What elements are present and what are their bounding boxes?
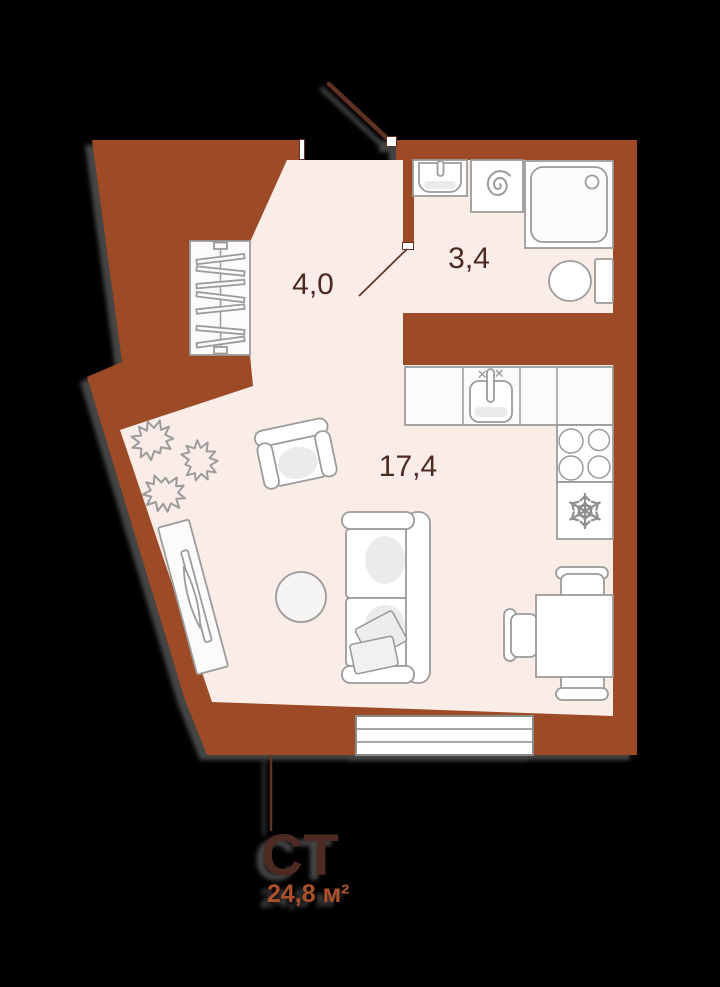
kitchen-counter [405,367,613,425]
door-jamb [300,140,305,160]
sofa-backrest [406,512,430,683]
sofa-armrest [342,512,414,529]
toilet [549,259,613,303]
room-label-bathroom: 3,4 [448,242,490,275]
unit-type-label: СТ [261,823,341,888]
faucet-icon [438,161,444,176]
stove [557,425,613,482]
unit-area-label: 24,8 м² [267,880,349,908]
washing-machine [471,160,523,212]
dining-table [536,595,613,677]
drain-icon [586,176,599,189]
fridge [557,482,613,539]
faucet-icon [487,369,494,402]
entrance-door [300,84,397,160]
pouf [276,572,326,622]
bathroom-sink [413,160,467,196]
rail-cap [214,347,227,354]
rail-cap [214,243,227,250]
entrance-door-hinge [387,137,397,147]
floor-plan: 4,0 3,4 17,4 СТ 24,8 м² [0,0,720,987]
wardrobe [190,241,250,355]
room-label-living-kitchen: 17,4 [379,450,437,483]
entrance-door-leaf [329,84,390,141]
window [356,716,533,755]
floor-plan-page: 4,0 3,4 17,4 СТ 24,8 м² [0,0,720,987]
sofa [342,512,430,683]
kitchen-bathroom-wall [403,313,613,365]
chair [504,609,537,661]
bathroom-door-jamb [403,243,414,250]
room-label-hallway: 4,0 [292,268,334,301]
shower [525,161,613,248]
